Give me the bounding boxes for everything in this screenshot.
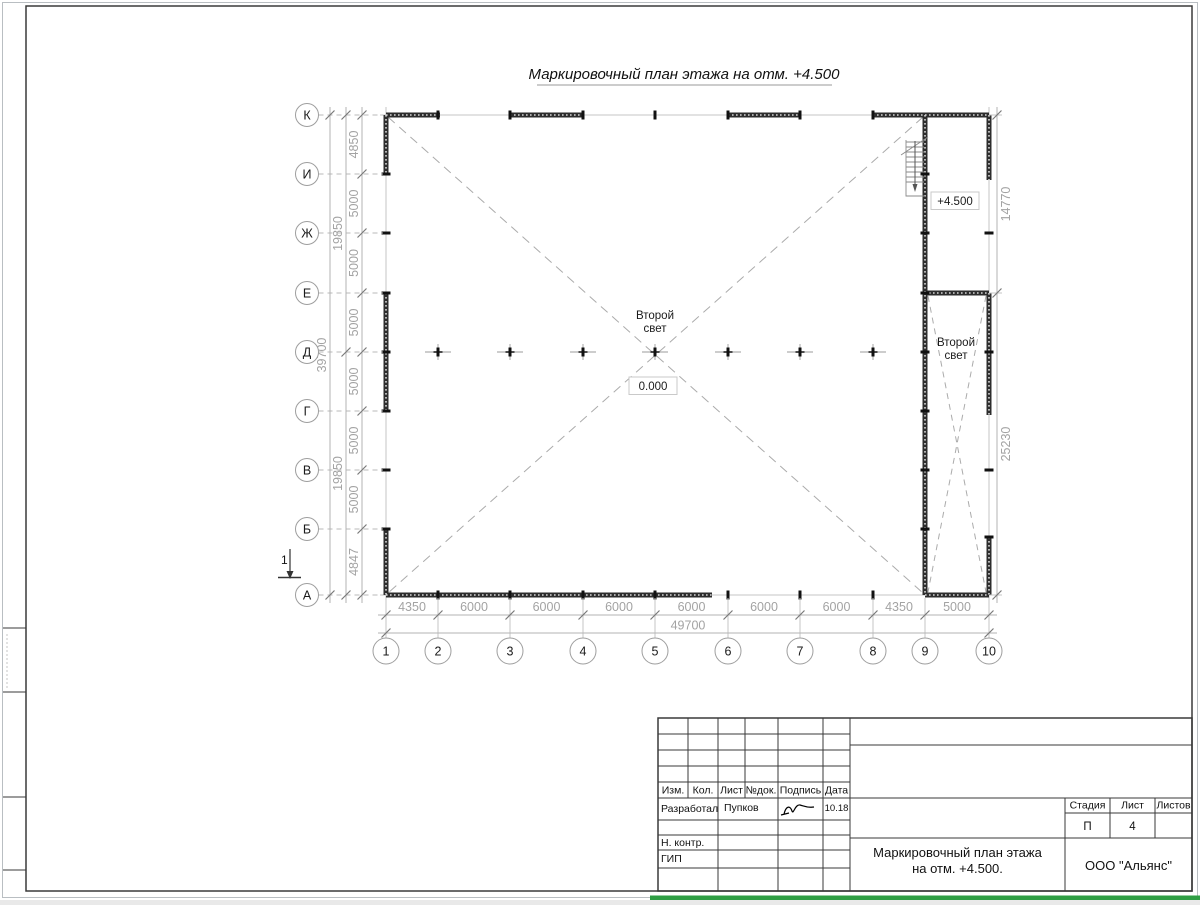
tb-col-kol: Кол. — [693, 785, 714, 797]
dim-value: 6000 — [823, 600, 851, 614]
dim-value: 14770 — [999, 187, 1013, 222]
elevation-plus-label: +4.500 — [931, 192, 979, 210]
dim-value: 4350 — [398, 600, 426, 614]
axis-label: А — [303, 589, 312, 603]
dim-value: 6000 — [460, 600, 488, 614]
dim-value: 5000 — [943, 600, 971, 614]
dim-value: 4847 — [347, 548, 361, 576]
axis-label: Е — [303, 287, 311, 301]
second-light-center-l1: Второй — [636, 310, 674, 322]
axis-label: 7 — [797, 645, 804, 659]
dim-value: 5000 — [347, 368, 361, 396]
axis-label: И — [303, 168, 312, 182]
dim-value: 6000 — [605, 600, 633, 614]
tb-col-list: Лист — [720, 785, 743, 797]
axis-label: 5 — [652, 645, 659, 659]
tb-col-podpis: Подпись — [780, 785, 822, 797]
tb-role-ncontr: Н. контр. — [661, 837, 704, 849]
second-light-right-l1: Второй — [937, 337, 975, 349]
dim-value: 5000 — [347, 309, 361, 337]
section-mark-number: 1 — [281, 553, 288, 567]
bottom-window-edge-bar — [650, 896, 1200, 901]
dim-value: 25230 — [999, 427, 1013, 462]
dim-value: 4850 — [347, 131, 361, 159]
axis-label: 8 — [870, 645, 877, 659]
axis-label: 1 — [383, 645, 390, 659]
axis-label: 10 — [982, 645, 996, 659]
tb-col-izm: Изм. — [662, 785, 685, 797]
dim-value: 4350 — [885, 600, 913, 614]
tb-sheet-value: 4 — [1129, 821, 1136, 833]
axis-label: В — [303, 464, 311, 478]
tb-role-gip: ГИП — [661, 853, 682, 865]
tb-company-name: ООО "Альянс" — [1085, 858, 1172, 873]
axis-label: 3 — [507, 645, 514, 659]
tb-date: 10.18 — [825, 803, 849, 814]
dim-value: 5000 — [347, 486, 361, 514]
axis-label: 2 — [435, 645, 442, 659]
tb-stage-label: Стадия — [1070, 800, 1106, 812]
dim-value: 6000 — [533, 600, 561, 614]
dim-value: 5000 — [347, 427, 361, 455]
axis-label: Г — [304, 405, 311, 419]
dim-mid-value: 19850 — [331, 216, 345, 251]
tb-name-developed: Пупков — [724, 802, 759, 814]
axis-label: 9 — [922, 645, 929, 659]
plan-title-text: Маркировочный план этажа на отм. +4.500 — [529, 66, 841, 83]
tb-stage-value: П — [1083, 821, 1091, 833]
dim-value: 6000 — [750, 600, 778, 614]
second-light-center-l2: свет — [643, 323, 667, 335]
axis-label: Б — [303, 523, 311, 537]
dim-mid-value: 19850 — [331, 456, 345, 491]
dim-value: 5000 — [347, 190, 361, 218]
tb-sheets-label: Листов — [1156, 800, 1191, 812]
sheet-outer-border — [3, 3, 1198, 898]
tb-sheet-label: Лист — [1121, 800, 1144, 812]
tb-col-ndok: №док. — [746, 785, 777, 797]
elevation-zero-label: 0.000 — [629, 377, 677, 395]
tb-doc-title-line2: на отм. +4.500. — [912, 861, 1003, 876]
drawing-sheet: Маркировочный план этажа на отм. +4.500 … — [0, 0, 1200, 900]
dim-value: 6000 — [678, 600, 706, 614]
dim-value: 5000 — [347, 249, 361, 277]
elevation-zero-text: 0.000 — [639, 381, 668, 393]
axis-label: Д — [303, 346, 312, 360]
plan-title: Маркировочный план этажа на отм. +4.500 — [529, 66, 841, 85]
elevation-plus-text: +4.500 — [937, 196, 973, 208]
tb-role-developed: Разработал — [661, 803, 718, 815]
second-light-right-l2: свет — [944, 350, 968, 362]
axis-label: Ж — [301, 227, 313, 241]
axis-label: К — [303, 109, 311, 123]
dim-total-value: 49700 — [671, 619, 706, 633]
axis-label: 6 — [725, 645, 732, 659]
axis-label: 4 — [580, 645, 587, 659]
floor-plan-canvas: Маркировочный план этажа на отм. +4.500 … — [0, 0, 1200, 900]
tb-doc-title-line1: Маркировочный план этажа — [873, 845, 1042, 860]
tb-col-data: Дата — [825, 785, 848, 797]
